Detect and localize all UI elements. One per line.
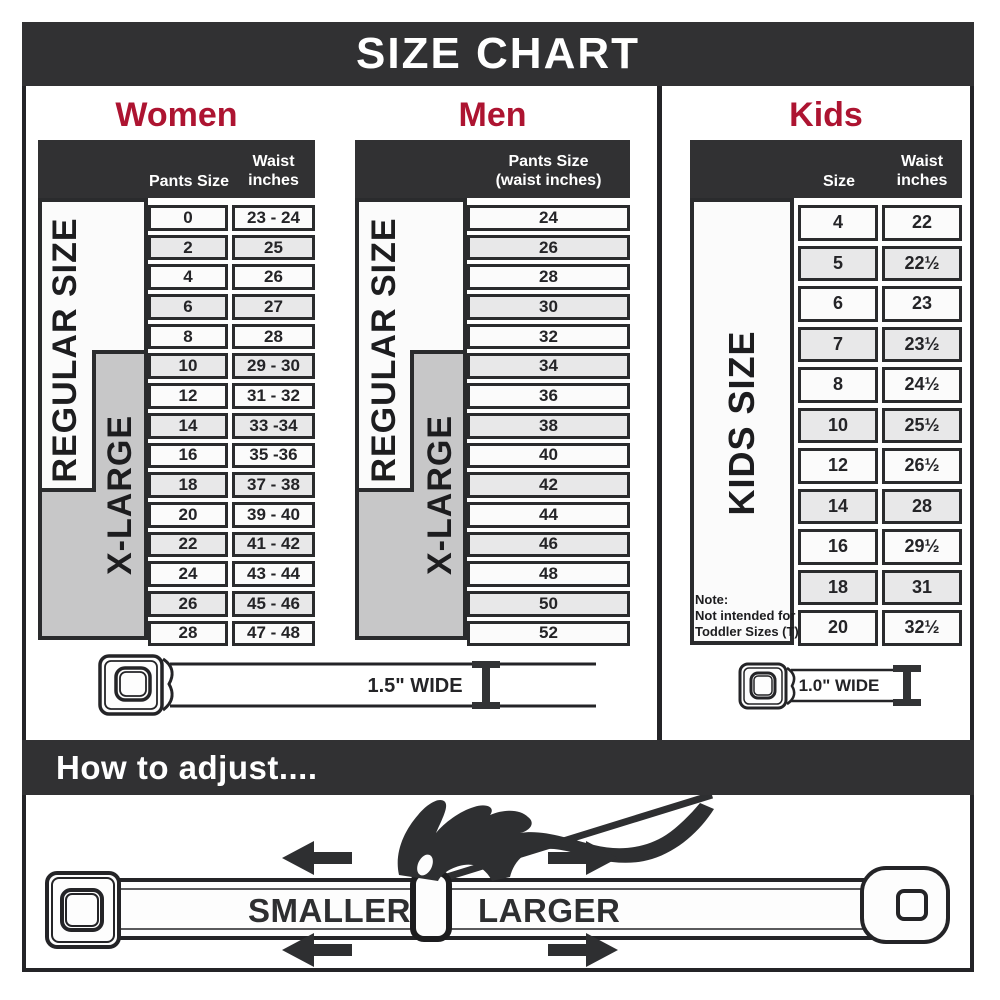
women-xlarge-label: X-LARGE [95, 355, 145, 635]
size-cell: 12 [798, 448, 878, 484]
size-cell: 10 [798, 408, 878, 444]
pants-size-cell: 24 [467, 205, 630, 231]
waist-cell: 43 - 44 [232, 561, 315, 587]
pants-size-cell: 40 [467, 443, 630, 469]
kids-size-table: 4 22 5 22½ 6 23 7 23½ 8 24½ 10 25½ 12 26… [798, 205, 962, 646]
women-table-row: 18 37 - 38 [148, 472, 315, 498]
women-table-row: 20 39 - 40 [148, 502, 315, 528]
waist-cell: 29½ [882, 529, 962, 565]
pants-size-cell: 6 [148, 294, 228, 320]
pants-size-cell: 42 [467, 472, 630, 498]
kids-col2-header: Waist inches [882, 152, 962, 190]
pants-size-cell: 34 [467, 353, 630, 379]
waist-cell: 31 - 32 [232, 383, 315, 409]
kids-table-row: 4 22 [798, 205, 962, 241]
kids-col1-header: Size [798, 172, 880, 191]
pants-size-cell: 0 [148, 205, 228, 231]
kids-table-row: 7 23½ [798, 327, 962, 363]
men-table-row: 24 [467, 205, 630, 231]
waist-cell: 22 [882, 205, 962, 241]
women-table-header: Pants Size Waist inches [38, 140, 315, 198]
waist-cell: 45 - 46 [232, 591, 315, 617]
pants-size-cell: 8 [148, 324, 228, 350]
men-xlarge-label: X-LARGE [415, 355, 465, 635]
men-table-row: 28 [467, 264, 630, 290]
waist-cell: 27 [232, 294, 315, 320]
women-table-row: 12 31 - 32 [148, 383, 315, 409]
size-chart-page: SIZE CHART Women Men Kids Pants Size Wai… [0, 0, 1000, 1000]
waist-cell: 25½ [882, 408, 962, 444]
men-regular-size-label: REGULAR SIZE [359, 200, 409, 500]
size-cell: 14 [798, 489, 878, 525]
women-table-row: 6 27 [148, 294, 315, 320]
women-table-row: 14 33 -34 [148, 413, 315, 439]
pants-size-cell: 44 [467, 502, 630, 528]
men-table-row: 38 [467, 413, 630, 439]
women-table-row: 8 28 [148, 324, 315, 350]
kids-table-row: 18 31 [798, 570, 962, 606]
men-table-row: 32 [467, 324, 630, 350]
pants-size-cell: 26 [467, 235, 630, 261]
waist-cell: 28 [232, 324, 315, 350]
size-cell: 8 [798, 367, 878, 403]
waist-cell: 39 - 40 [232, 502, 315, 528]
kids-table-row: 10 25½ [798, 408, 962, 444]
adjust-belt-illustration [22, 795, 974, 972]
pants-size-cell: 28 [467, 264, 630, 290]
women-table-row: 28 47 - 48 [148, 621, 315, 647]
waist-cell: 25 [232, 235, 315, 261]
pants-size-cell: 22 [148, 532, 228, 558]
women-regular-size-label: REGULAR SIZE [40, 200, 90, 500]
women-table-row: 24 43 - 44 [148, 561, 315, 587]
men-heading: Men [355, 94, 630, 136]
size-cell: 18 [798, 570, 878, 606]
waist-cell: 32½ [882, 610, 962, 646]
i-beam-width-marker-icon [472, 661, 500, 709]
pants-size-cell: 24 [148, 561, 228, 587]
pants-size-cell: 38 [467, 413, 630, 439]
men-size-table: 24 26 28 30 32 34 36 38 40 42 44 46 [467, 205, 630, 646]
kids-table-row: 12 26½ [798, 448, 962, 484]
pants-size-cell: 16 [148, 443, 228, 469]
men-table-header: Pants Size (waist inches) [355, 140, 630, 198]
waist-cell: 23½ [882, 327, 962, 363]
adult-belt-illustration [90, 653, 610, 725]
pants-size-cell: 18 [148, 472, 228, 498]
waist-cell: 26 [232, 264, 315, 290]
women-table-row: 26 45 - 46 [148, 591, 315, 617]
i-beam-width-marker-icon [893, 665, 921, 706]
pants-size-cell: 4 [148, 264, 228, 290]
men-table-row: 46 [467, 532, 630, 558]
buckle-strap-connector [787, 668, 794, 704]
women-col1-header: Pants Size [148, 172, 230, 191]
arrow-left-icon [282, 841, 352, 875]
women-table-row: 10 29 - 30 [148, 353, 315, 379]
seatbelt-buckle-icon [47, 873, 119, 947]
pants-size-cell: 28 [148, 621, 228, 647]
adult-belt-width-label: 1.5" WIDE [360, 675, 470, 698]
women-table-row: 4 26 [148, 264, 315, 290]
men-table-row: 52 [467, 621, 630, 647]
pants-size-cell: 2 [148, 235, 228, 261]
size-cell: 20 [798, 610, 878, 646]
pants-size-cell: 20 [148, 502, 228, 528]
waist-cell: 24½ [882, 367, 962, 403]
kids-size-label: KIDS SIZE [717, 263, 767, 583]
larger-label: LARGER [478, 892, 602, 930]
men-col-header: Pants Size (waist inches) [467, 152, 630, 190]
belt-slider [413, 873, 449, 939]
pants-size-cell: 30 [467, 294, 630, 320]
kids-table-row: 5 22½ [798, 246, 962, 282]
pants-size-cell: 26 [148, 591, 228, 617]
pants-size-cell: 32 [467, 324, 630, 350]
kids-note: Note: Not intended for Toddler Sizes (T) [695, 592, 799, 640]
belt-end-tab-icon [862, 868, 948, 942]
seatbelt-buckle-icon [100, 656, 162, 714]
kids-heading: Kids [690, 94, 962, 136]
seatbelt-buckle-icon [740, 664, 786, 708]
women-heading: Women [38, 94, 315, 136]
waist-cell: 47 - 48 [232, 621, 315, 647]
waist-cell: 41 - 42 [232, 532, 315, 558]
pants-size-cell: 48 [467, 561, 630, 587]
men-table-row: 50 [467, 591, 630, 617]
waist-cell: 33 -34 [232, 413, 315, 439]
waist-cell: 31 [882, 570, 962, 606]
pants-size-cell: 12 [148, 383, 228, 409]
women-table-row: 16 35 -36 [148, 443, 315, 469]
pants-size-cell: 10 [148, 353, 228, 379]
pants-size-cell: 36 [467, 383, 630, 409]
size-cell: 6 [798, 286, 878, 322]
men-table-row: 42 [467, 472, 630, 498]
men-table-row: 26 [467, 235, 630, 261]
men-table-row: 34 [467, 353, 630, 379]
men-table-row: 44 [467, 502, 630, 528]
waist-cell: 23 - 24 [232, 205, 315, 231]
pants-size-cell: 46 [467, 532, 630, 558]
waist-cell: 37 - 38 [232, 472, 315, 498]
page-title: SIZE CHART [22, 22, 974, 86]
pants-size-cell: 52 [467, 621, 630, 647]
waist-cell: 28 [882, 489, 962, 525]
women-size-table: 0 23 - 24 2 25 4 26 6 27 8 28 10 29 - 30… [148, 205, 315, 646]
size-cell: 16 [798, 529, 878, 565]
how-to-adjust-heading: How to adjust.... [22, 740, 974, 795]
size-cell: 4 [798, 205, 878, 241]
men-table-row: 36 [467, 383, 630, 409]
women-table-row: 2 25 [148, 235, 315, 261]
kids-table-row: 20 32½ [798, 610, 962, 646]
waist-cell: 29 - 30 [232, 353, 315, 379]
kids-table-row: 16 29½ [798, 529, 962, 565]
women-table-row: 0 23 - 24 [148, 205, 315, 231]
waist-cell: 22½ [882, 246, 962, 282]
size-cell: 7 [798, 327, 878, 363]
waist-cell: 23 [882, 286, 962, 322]
size-cell: 5 [798, 246, 878, 282]
kids-table-row: 8 24½ [798, 367, 962, 403]
women-col2-header: Waist inches [232, 152, 315, 190]
kids-belt-width-label: 1.0" WIDE [798, 676, 880, 696]
men-table-row: 48 [467, 561, 630, 587]
kids-table-row: 14 28 [798, 489, 962, 525]
pants-size-cell: 14 [148, 413, 228, 439]
section-divider [657, 86, 662, 740]
men-table-row: 30 [467, 294, 630, 320]
men-table-row: 40 [467, 443, 630, 469]
waist-cell: 35 -36 [232, 443, 315, 469]
buckle-strap-connector [163, 659, 172, 710]
kids-table-header: Size Waist inches [690, 140, 962, 198]
pants-size-cell: 50 [467, 591, 630, 617]
kids-table-row: 6 23 [798, 286, 962, 322]
smaller-label: SMALLER [248, 892, 382, 930]
women-table-row: 22 41 - 42 [148, 532, 315, 558]
waist-cell: 26½ [882, 448, 962, 484]
